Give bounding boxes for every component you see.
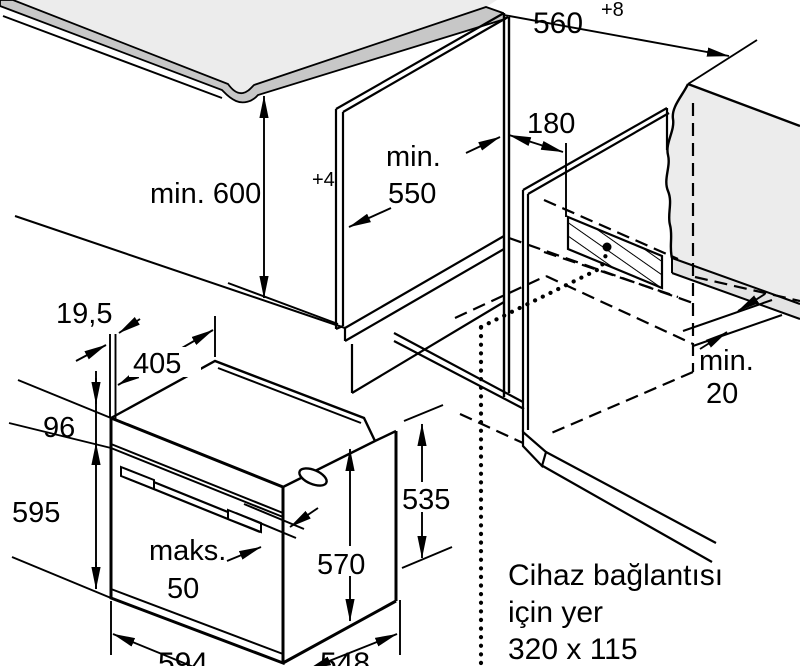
connection-point-dot — [603, 243, 612, 252]
label-rear-gap-1: min. — [699, 345, 754, 377]
label-oven-width: 594 — [158, 647, 208, 666]
cabinet-front-edge — [523, 190, 528, 432]
dim-niche-depth-a — [466, 137, 500, 153]
dim-handle-a — [290, 508, 318, 527]
cabinet-foot — [523, 432, 546, 466]
label-niche-height-tolerance: +4 — [312, 169, 335, 191]
label-handle-projection-2: 50 — [167, 573, 199, 605]
label-niche-width: 560 — [533, 7, 583, 40]
label-niche-width-tolerance: +8 — [601, 0, 624, 21]
label-rear-gap-2: 20 — [706, 378, 738, 410]
oven-rear-edge — [283, 431, 396, 663]
dim-handle-b — [227, 547, 261, 561]
installation-diagram: 560 +8 min. 600 +4 min. 550 180 19,5 405… — [0, 0, 800, 666]
label-niche-height: min. 600 — [150, 178, 261, 210]
ext-wall-top — [688, 40, 757, 84]
hidden-niche-outline-1 — [455, 276, 546, 318]
hidden-niche-outline-4 — [460, 414, 523, 443]
connection-note-line-1: Cihaz bağlantısı — [508, 559, 723, 592]
worktop-left — [0, 0, 505, 102]
label-panel-height: 96 — [43, 412, 75, 444]
hidden-niche-outline-2 — [546, 276, 693, 344]
connection-note-line-3: 320 x 115 — [508, 633, 638, 666]
label-niche-depth-1: min. — [386, 141, 441, 173]
panel-back-edge — [504, 13, 509, 397]
side-grip-cutout — [297, 465, 329, 489]
dim-niche-depth-b — [349, 208, 391, 227]
connection-note: Cihaz bağlantısı için yer 320 x 115 — [508, 559, 723, 666]
hidden-niche-outline-3 — [549, 372, 693, 434]
ext-rear-height-bottom — [402, 547, 452, 568]
label-front-overhang: 19,5 — [56, 298, 112, 330]
dim-overhang-a — [76, 345, 106, 361]
installation-diagram-page: 560 +8 min. 600 +4 min. 550 180 19,5 405… — [0, 0, 800, 666]
label-handle-projection-1: maks. — [149, 535, 226, 567]
label-top-depth: 405 — [133, 348, 181, 380]
label-connection-offset: 180 — [527, 108, 575, 140]
label-niche-depth-2: 550 — [388, 178, 436, 210]
rear-wall — [666, 84, 800, 346]
connection-note-line-2: için yer — [508, 596, 603, 629]
cabinet-plinth-lines — [541, 452, 716, 562]
label-oven-depth: 548 — [320, 647, 370, 666]
ext-rear-height-top — [404, 405, 443, 421]
label-oven-rear-height: 535 — [402, 484, 450, 516]
floor-line-left-2 — [228, 283, 338, 324]
ext-overhang — [110, 334, 116, 420]
oven — [111, 361, 396, 663]
dim-overhang-b — [119, 319, 140, 333]
cable-route-diagonal — [481, 252, 607, 327]
door-handle-cap-left — [121, 467, 154, 489]
panel-front-edge — [336, 109, 343, 329]
oven-top-rear-lip — [218, 368, 361, 423]
label-oven-inner-height: 570 — [317, 549, 365, 581]
label-oven-height: 595 — [12, 497, 60, 529]
